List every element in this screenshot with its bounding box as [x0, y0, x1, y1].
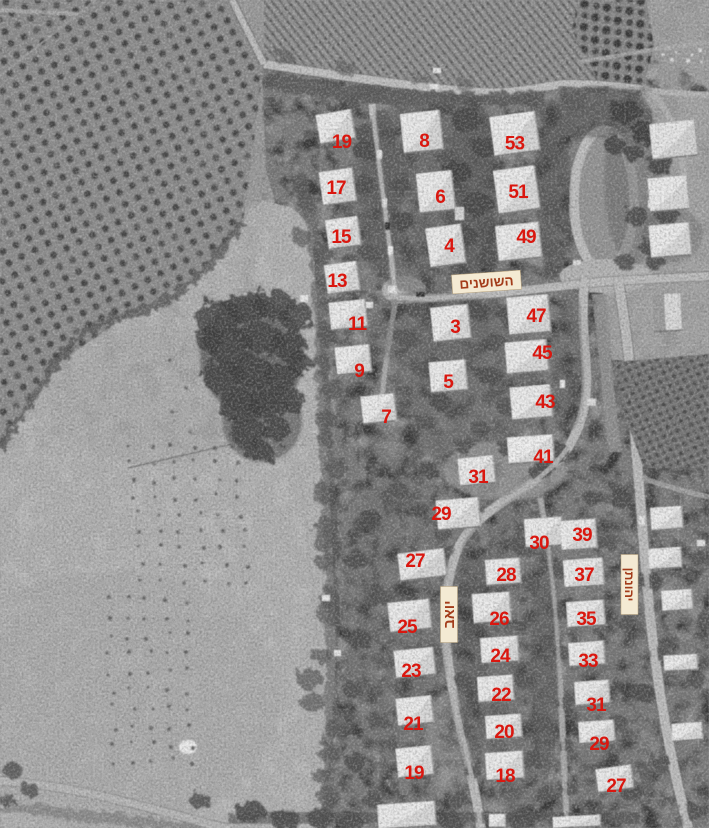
svg-text:39: 39: [572, 525, 592, 546]
svg-text:27: 27: [405, 551, 425, 572]
svg-text:35: 35: [576, 609, 597, 630]
svg-text:6: 6: [435, 187, 445, 208]
svg-text:19: 19: [404, 763, 424, 784]
svg-text:27: 27: [606, 776, 626, 797]
svg-text:3: 3: [450, 317, 460, 338]
svg-text:19: 19: [332, 132, 352, 153]
svg-text:43: 43: [535, 392, 555, 413]
svg-text:20: 20: [494, 722, 514, 743]
svg-text:51: 51: [508, 182, 529, 203]
svg-text:31: 31: [586, 695, 607, 716]
svg-text:45: 45: [532, 343, 553, 364]
svg-text:37: 37: [574, 565, 594, 586]
svg-text:4: 4: [444, 236, 455, 257]
svg-text:8: 8: [419, 131, 429, 152]
svg-text:7: 7: [381, 407, 391, 428]
svg-text:5: 5: [443, 372, 454, 393]
svg-text:22: 22: [491, 685, 511, 706]
svg-text:9: 9: [354, 361, 364, 382]
svg-text:23: 23: [401, 661, 421, 682]
svg-text:18: 18: [495, 766, 515, 787]
svg-text:53: 53: [505, 133, 525, 154]
svg-text:13: 13: [327, 271, 347, 292]
svg-text:41: 41: [533, 447, 554, 468]
svg-text:17: 17: [326, 178, 346, 199]
svg-text:29: 29: [431, 504, 451, 525]
svg-text:28: 28: [496, 565, 516, 586]
svg-text:29: 29: [589, 734, 609, 755]
svg-text:יואב: יואב: [442, 601, 458, 629]
svg-text:49: 49: [516, 227, 536, 248]
svg-text:11: 11: [348, 314, 368, 335]
svg-text:15: 15: [331, 227, 352, 248]
svg-text:24: 24: [490, 646, 511, 667]
svg-text:21: 21: [403, 714, 424, 735]
svg-text:יהונתן: יהונתן: [622, 568, 636, 602]
svg-text:47: 47: [526, 306, 546, 327]
svg-text:30: 30: [529, 533, 549, 554]
svg-text:26: 26: [489, 609, 509, 630]
svg-text:33: 33: [578, 651, 598, 672]
svg-text:25: 25: [397, 617, 418, 638]
svg-text:31: 31: [468, 467, 489, 488]
